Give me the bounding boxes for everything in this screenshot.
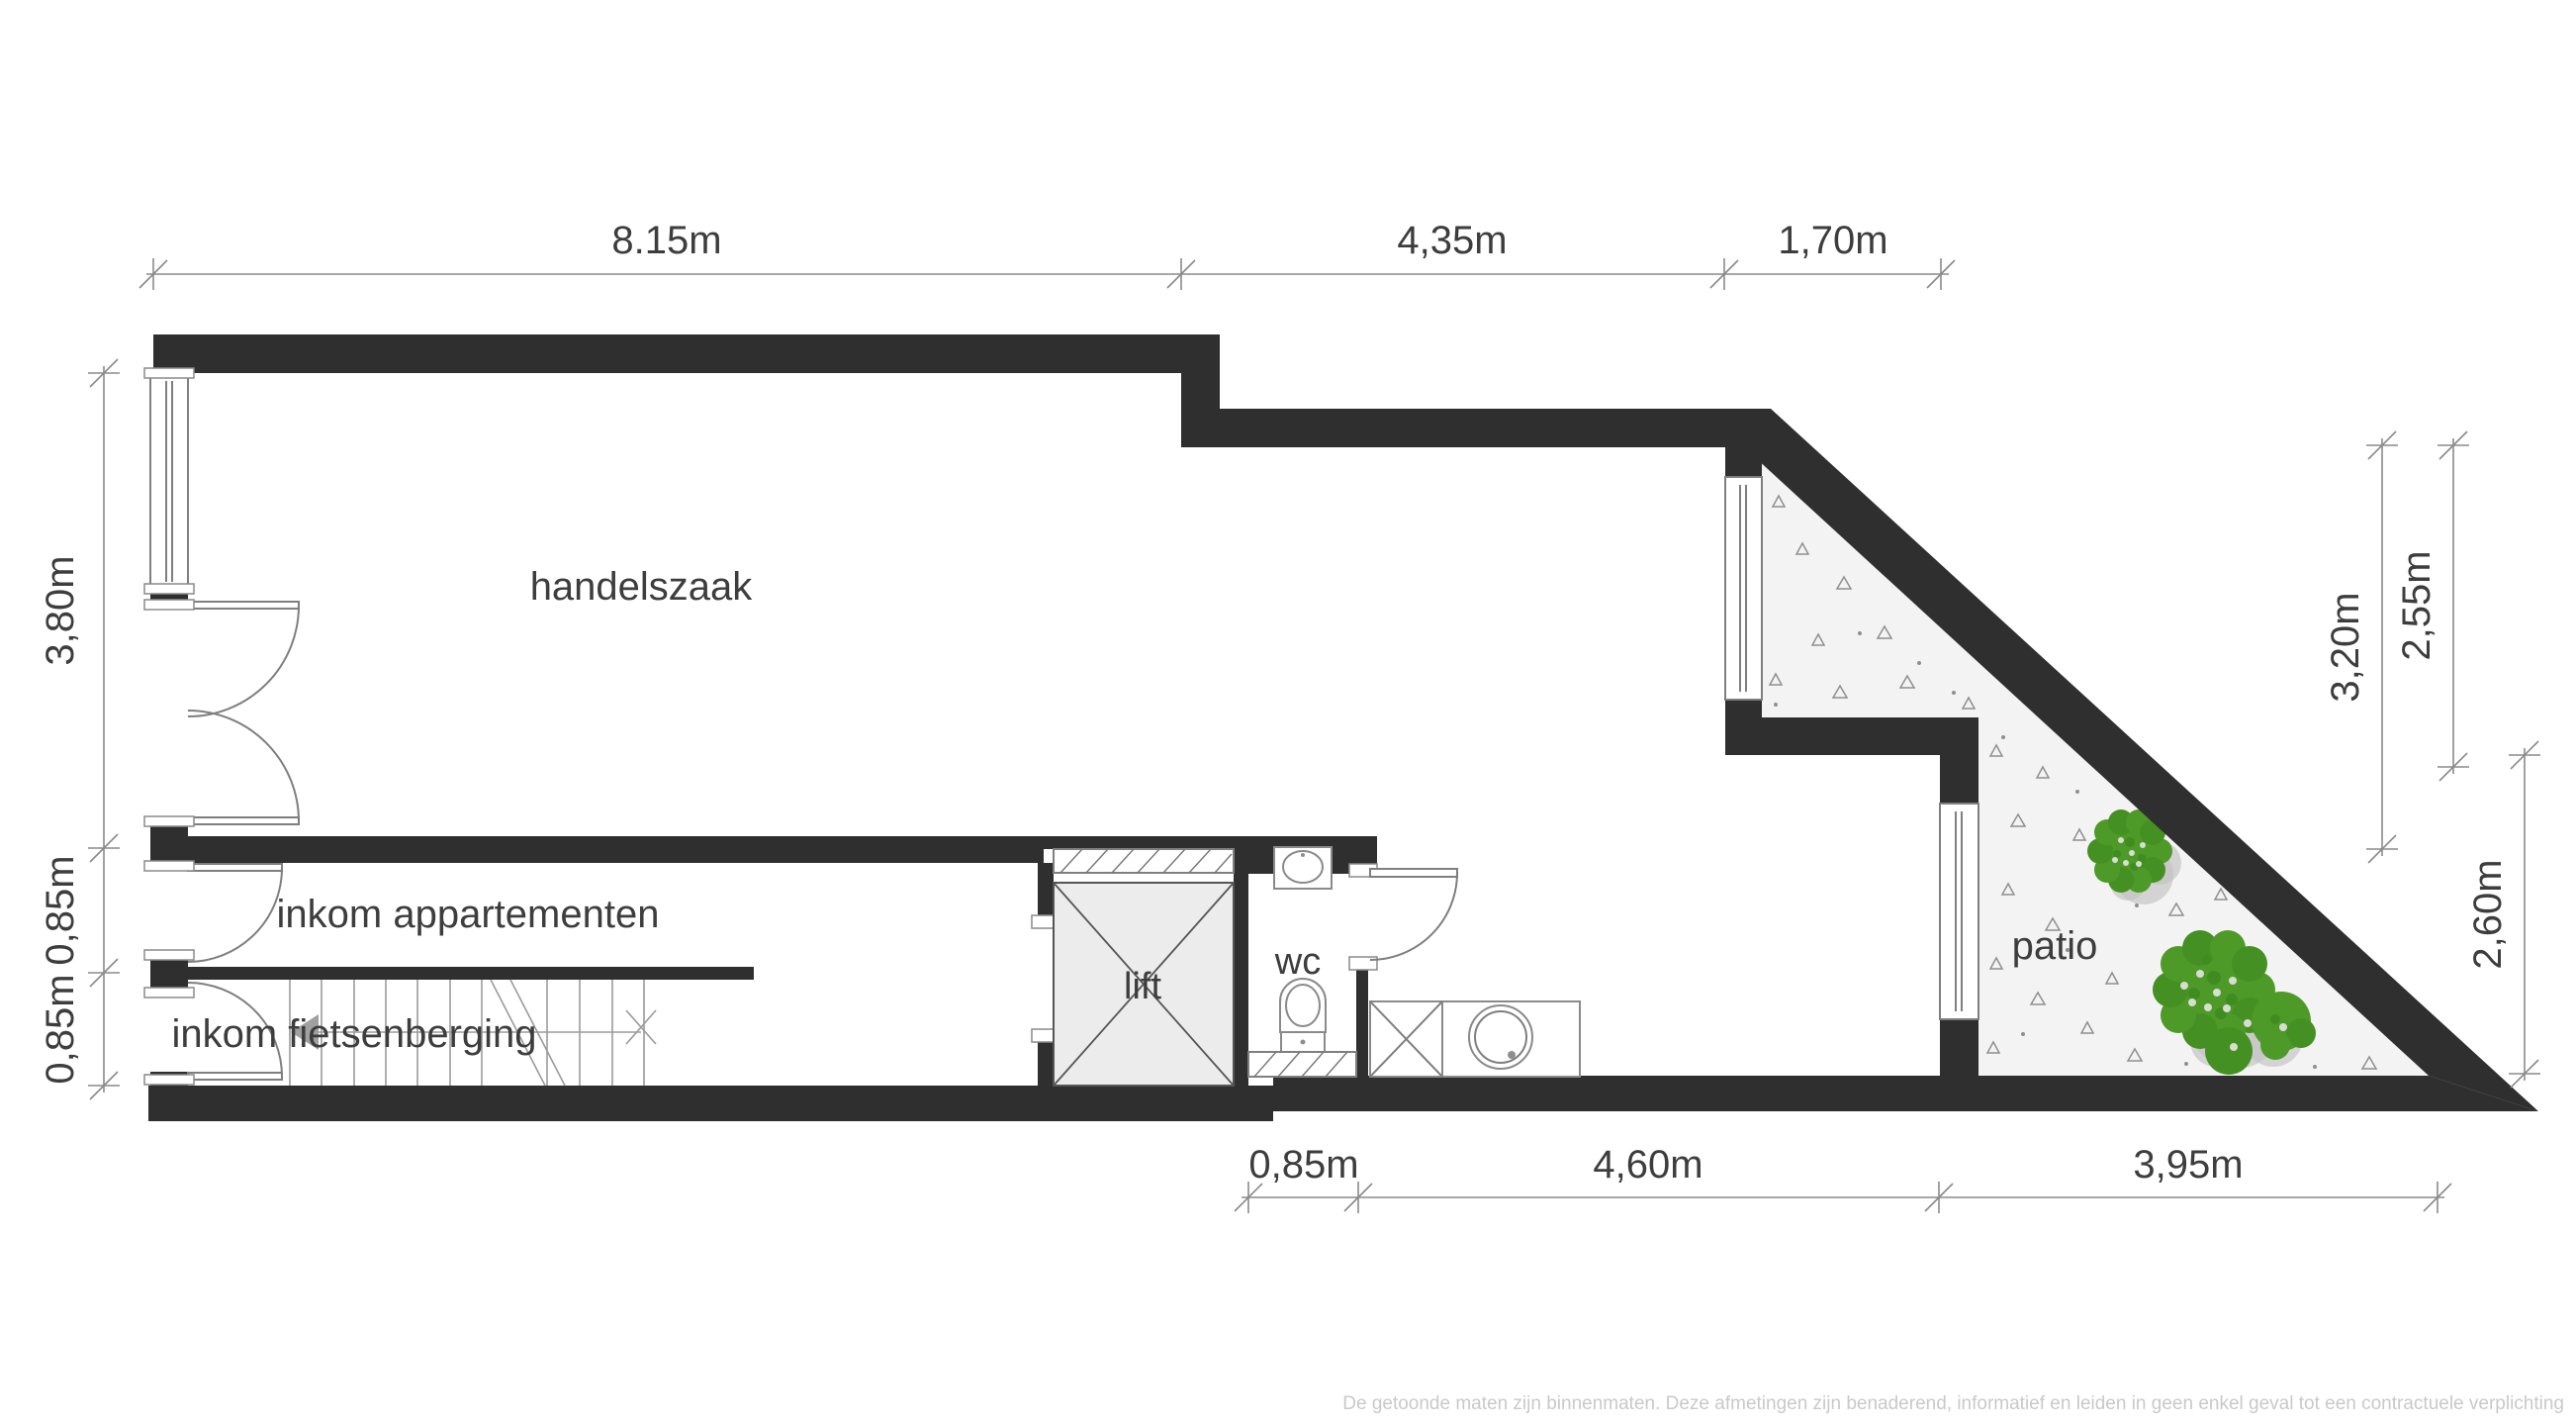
- patio-label: patio: [2012, 924, 2098, 968]
- inkom-appartementen-label: inkom appartementen: [277, 893, 660, 936]
- wc-toilet: [1280, 979, 1326, 1052]
- dim-bottom-1: 0,85m: [1248, 1143, 1358, 1187]
- dim-left-3: 0,85m: [39, 974, 82, 1084]
- floor-plan: lift wc: [0, 0, 2576, 1425]
- wall-stair-railing: [181, 967, 754, 980]
- apartment-entrance-door: [144, 861, 282, 962]
- dim-right-2: 2,55m: [2395, 550, 2438, 660]
- lift-door-jambs: [1032, 915, 1056, 1042]
- patio-window-upper: [1725, 477, 1762, 700]
- wall-patio-stub-4: [1940, 1019, 1978, 1076]
- dim-left-1: 3,80m: [39, 555, 82, 665]
- wall-lift-right: [1234, 849, 1248, 1086]
- wall-wc-right: [1356, 970, 1368, 1086]
- wall-patio-stub-1: [1725, 447, 1762, 477]
- footer-disclaimer: De getoonde maten zijn binnenmaten. Deze…: [1342, 1393, 2564, 1414]
- lift-shaft: lift: [1054, 849, 1234, 1086]
- dim-top-2: 4,35m: [1397, 219, 1507, 262]
- wall-over-lift: [1044, 836, 1248, 849]
- dim-top-1: 8.15m: [611, 219, 721, 262]
- dim-right-1: 3,20m: [2324, 592, 2367, 702]
- wc-door: [1349, 864, 1457, 970]
- dim-bottom-2: 4,60m: [1593, 1143, 1702, 1187]
- wc-floor-hatch: [1248, 1052, 1356, 1077]
- wall-hall-top: [188, 836, 1044, 863]
- counter-unit: [1370, 1001, 1580, 1077]
- wall-lift-left-lower: [1038, 1042, 1054, 1086]
- counter-sink: [1469, 1005, 1532, 1069]
- lift-label: lift: [1124, 966, 1161, 1007]
- wall-top-step: [1181, 373, 1220, 413]
- wall-top-right: [1181, 409, 1771, 447]
- wc-label: wc: [1274, 941, 1321, 983]
- dim-bottom: 0,85m 4,60m 3,95m: [1235, 1143, 2451, 1213]
- wc-sink: [1274, 847, 1332, 889]
- dim-bottom-3: 3,95m: [2133, 1143, 2243, 1187]
- wall-top-left: [153, 334, 1220, 373]
- dim-top: 8.15m 4,35m 1,70m: [139, 219, 1955, 290]
- wc-room: wc: [1248, 847, 1356, 1077]
- wall-lift-left-upper: [1038, 863, 1054, 917]
- storefront-double-door: [144, 600, 299, 826]
- patio-window-lower: [1940, 804, 1978, 1019]
- wall-patio-mid: [1725, 717, 1978, 755]
- dim-left: 3,80m 0,85m 0,85m: [39, 359, 120, 1099]
- dim-right-3: 2,60m: [2466, 859, 2510, 969]
- handelszaak-label: handelszaak: [530, 565, 754, 609]
- wall-bottom-left: [148, 1086, 1273, 1121]
- wall-patio-stub-2: [1725, 700, 1762, 717]
- lift-door-hatch: [1054, 849, 1234, 873]
- storefront-window: [144, 368, 194, 594]
- inkom-fietsenberging-label: inkom fietsenberging: [171, 1012, 536, 1056]
- dim-top-3: 1,70m: [1778, 219, 1887, 262]
- wall-bottom-right: [1273, 1076, 2538, 1111]
- wall-patio-stub-3: [1940, 755, 1978, 804]
- dim-left-2: 0,85m: [39, 855, 82, 965]
